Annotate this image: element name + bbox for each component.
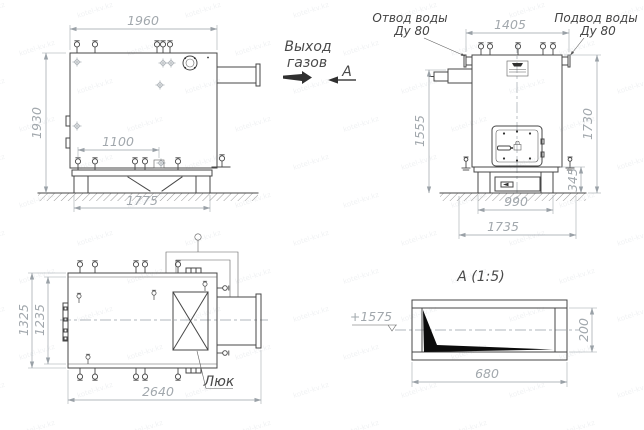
water-supply-label-line1: Подвод воды [554, 11, 637, 25]
svg-text:kotel-kv.kz: kotel-kv.kz [126, 343, 164, 362]
svg-text:kotel-kv.kz: kotel-kv.kz [126, 419, 164, 430]
svg-text:kotel-kv.kz: kotel-kv.kz [184, 229, 222, 248]
hinge-strip-plan [63, 303, 68, 341]
section-arrow-label: А [341, 64, 352, 80]
dim-1100: 1100 [78, 134, 159, 159]
dim-text-1960: 1960 [127, 13, 159, 28]
svg-text:kotel-kv.kz: kotel-kv.kz [342, 39, 380, 58]
svg-text:kotel-kv.kz: kotel-kv.kz [0, 229, 6, 248]
svg-text:kotel-kv.kz: kotel-kv.kz [292, 153, 330, 172]
svg-text:kotel-kv.kz: kotel-kv.kz [508, 381, 546, 400]
gas-outlet-label-line1: Выход [284, 39, 331, 55]
hatch-outline [173, 292, 208, 350]
dim-text-680: 680 [475, 366, 499, 381]
plan-view: Люк 1325 1235 2640 [16, 234, 268, 404]
svg-text:kotel-kv.kz: kotel-kv.kz [558, 419, 596, 430]
svg-text:kotel-kv.kz: kotel-kv.kz [0, 153, 6, 172]
svg-text:kotel-kv.kz: kotel-kv.kz [18, 343, 56, 362]
svg-text:kotel-kv.kz: kotel-kv.kz [234, 267, 272, 286]
dim-text-345: 345 [565, 168, 580, 192]
dim-text-1730: 1730 [580, 108, 595, 140]
dim-text-1555: 1555 [412, 115, 427, 147]
gas-outlet-pipe-side [217, 64, 260, 86]
svg-text:kotel-kv.kz: kotel-kv.kz [0, 305, 6, 324]
water-supply-label-line2: Ду 80 [579, 24, 616, 38]
hatch-label: Люк [203, 374, 235, 390]
svg-text:kotel-kv.kz: kotel-kv.kz [508, 77, 546, 96]
registration-crosses [73, 58, 176, 168]
front-view: Отвод воды Ду 80 Подвод воды Ду 80 1405 … [372, 11, 637, 239]
svg-text:kotel-kv.kz: kotel-kv.kz [342, 419, 380, 430]
nameplate [507, 61, 528, 76]
dim-text-2640: 2640 [142, 384, 174, 399]
svg-text:kotel-kv.kz: kotel-kv.kz [76, 229, 114, 248]
top-edge-valves-plan [77, 261, 180, 273]
dim-text-1405: 1405 [494, 17, 526, 32]
svg-text:kotel-kv.kz: kotel-kv.kz [126, 115, 164, 134]
svg-text:kotel-kv.kz: kotel-kv.kz [18, 419, 56, 430]
water-supply-flange [562, 55, 570, 67]
svg-text:kotel-kv.kz: kotel-kv.kz [400, 77, 438, 96]
svg-text:kotel-kv.kz: kotel-kv.kz [616, 305, 644, 324]
svg-text:kotel-kv.kz: kotel-kv.kz [342, 343, 380, 362]
svg-text:kotel-kv.kz: kotel-kv.kz [400, 381, 438, 400]
side-view: 1960 1930 1100 1775 [29, 13, 260, 212]
svg-text:kotel-kv.kz: kotel-kv.kz [616, 229, 644, 248]
svg-text:kotel-kv.kz: kotel-kv.kz [616, 77, 644, 96]
dim-text-1100: 1100 [102, 134, 134, 149]
svg-text:kotel-kv.kz: kotel-kv.kz [450, 115, 488, 134]
svg-text:kotel-kv.kz: kotel-kv.kz [18, 267, 56, 286]
bottom-edge-valves-plan [77, 368, 180, 380]
svg-text:kotel-kv.kz: kotel-kv.kz [76, 77, 114, 96]
svg-text:kotel-kv.kz: kotel-kv.kz [184, 1, 222, 20]
svg-text:kotel-kv.kz: kotel-kv.kz [0, 1, 6, 20]
svg-text:kotel-kv.kz: kotel-kv.kz [126, 39, 164, 58]
gas-outlet-label-line2: газов [287, 55, 327, 71]
dim-345: 345 [560, 167, 585, 193]
svg-text:kotel-kv.kz: kotel-kv.kz [18, 39, 56, 58]
dim-text-990: 990 [504, 194, 528, 209]
sight-port-flange [183, 56, 197, 70]
dim-text-1325: 1325 [16, 304, 31, 336]
dim-text-1775: 1775 [126, 193, 158, 208]
svg-text:kotel-kv.kz: kotel-kv.kz [292, 229, 330, 248]
svg-text:kotel-kv.kz: kotel-kv.kz [234, 419, 272, 430]
svg-text:kotel-kv.kz: kotel-kv.kz [292, 381, 330, 400]
dim-text-1930: 1930 [29, 107, 44, 139]
svg-text:kotel-kv.kz: kotel-kv.kz [76, 381, 114, 400]
svg-text:kotel-kv.kz: kotel-kv.kz [234, 343, 272, 362]
dim-text-200: 200 [576, 318, 591, 342]
water-outlet-label-line2: Ду 80 [393, 24, 430, 38]
base-frame-side [72, 167, 230, 193]
svg-text:kotel-kv.kz: kotel-kv.kz [616, 381, 644, 400]
svg-text:kotel-kv.kz: kotel-kv.kz [400, 153, 438, 172]
corner-dot [207, 57, 209, 59]
svg-text:kotel-kv.kz: kotel-kv.kz [234, 115, 272, 134]
svg-text:kotel-kv.kz: kotel-kv.kz [0, 381, 6, 400]
svg-text:kotel-kv.kz: kotel-kv.kz [450, 419, 488, 430]
svg-text:kotel-kv.kz: kotel-kv.kz [292, 1, 330, 20]
svg-text:kotel-kv.kz: kotel-kv.kz [342, 191, 380, 210]
gas-duct-plan [217, 294, 261, 348]
burner-pipe [429, 69, 472, 83]
svg-text:kotel-kv.kz: kotel-kv.kz [400, 229, 438, 248]
dim-text-1735: 1735 [487, 219, 519, 234]
door-hinges-side [66, 116, 70, 148]
dim-text-1235: 1235 [32, 304, 47, 336]
svg-text:kotel-kv.kz: kotel-kv.kz [76, 305, 114, 324]
elevation-mark-text: +1575 [350, 309, 392, 324]
svg-text:kotel-kv.kz: kotel-kv.kz [558, 267, 596, 286]
base-front [474, 167, 558, 193]
svg-text:kotel-kv.kz: kotel-kv.kz [342, 267, 380, 286]
gas-flow-annotation: Выход газов А [283, 39, 356, 84]
svg-text:kotel-kv.kz: kotel-kv.kz [342, 115, 380, 134]
water-outlet-label-line1: Отвод воды [372, 11, 447, 25]
svg-text:kotel-kv.kz: kotel-kv.kz [234, 39, 272, 58]
boiler-body-side [70, 53, 217, 168]
svg-text:kotel-kv.kz: kotel-kv.kz [76, 1, 114, 20]
svg-text:kotel-kv.kz: kotel-kv.kz [0, 77, 6, 96]
hatch-annotation: Люк [197, 351, 235, 390]
svg-text:kotel-kv.kz: kotel-kv.kz [292, 305, 330, 324]
svg-text:kotel-kv.kz: kotel-kv.kz [616, 153, 644, 172]
door-handle [498, 146, 511, 150]
water-outlet-flange [464, 55, 472, 67]
section-title: А (1:5) [456, 269, 504, 285]
elevation-annotation: +1575 [350, 309, 397, 331]
drawing-svg: kotel-kv.kzkotel-kv.kzkotel-kv.kzkotel-k… [0, 0, 644, 430]
section-view: А (1:5) +1575 200 680 [350, 269, 597, 387]
gas-flow-arrow [283, 71, 312, 84]
technical-drawing-sheet: kotel-kv.kzkotel-kv.kzkotel-kv.kzkotel-k… [0, 0, 644, 430]
lock-icon [514, 141, 521, 150]
section-direction-arrow [328, 76, 338, 83]
